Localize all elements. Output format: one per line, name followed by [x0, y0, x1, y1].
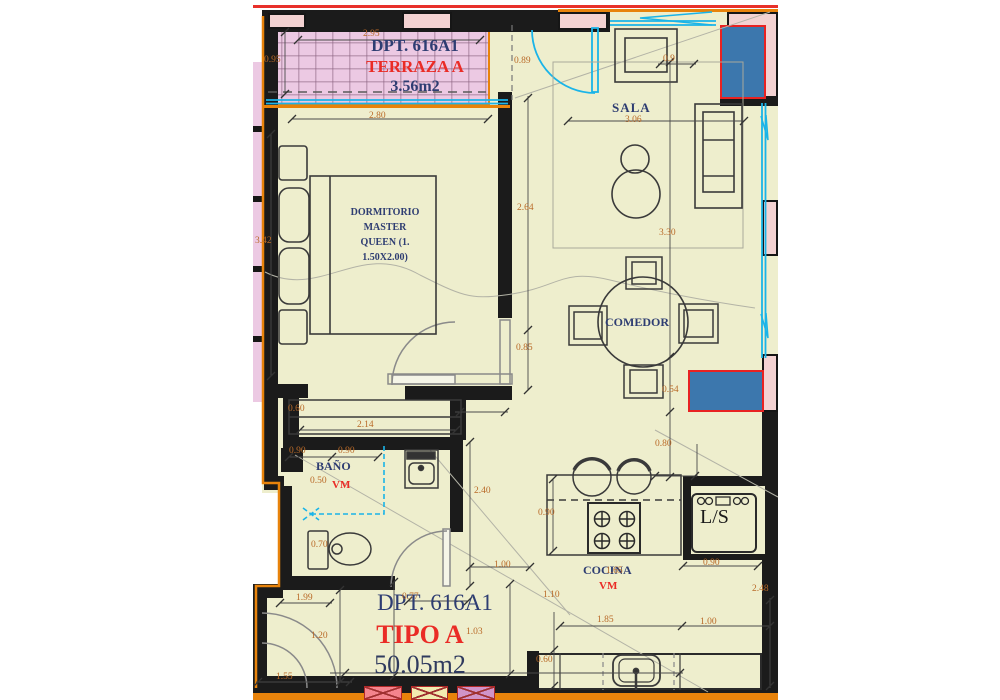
- terraza-door-arc: [532, 28, 598, 93]
- dim-bano-050: 0.50: [310, 476, 327, 486]
- dim-sala-sofa: 0.9: [663, 54, 675, 64]
- closet: [289, 400, 461, 434]
- shaft-box-purple: [457, 686, 495, 700]
- terraza-name-label: TERRAZA A: [340, 57, 490, 77]
- bathroom-sink: [405, 450, 438, 488]
- shaft-box-yellow: [411, 686, 448, 700]
- dim-dorm-width: 2.80: [369, 111, 386, 121]
- dim-dorm-length: 3.42: [255, 236, 272, 246]
- terraza-dpt-label: DPT. 616A1: [340, 36, 490, 56]
- dim-hall-door: 1.00: [494, 560, 511, 570]
- kitchen-counter-top: [547, 458, 681, 555]
- dim-bano-depth: 2.40: [474, 486, 491, 496]
- pillow: [279, 248, 309, 304]
- terraza-area-label: 3.56m2: [340, 78, 490, 96]
- armchair: [695, 104, 742, 208]
- side-table: [612, 145, 660, 218]
- dim-bano-w2: 0.90: [338, 446, 355, 456]
- boundary-line-orange-left: [256, 16, 279, 688]
- dim-entry-077: 0.77: [402, 592, 419, 602]
- cocina-vm-label: VM: [599, 580, 617, 592]
- dim-counter-right: 1.00: [700, 617, 717, 627]
- unit-dpt-label: DPT. 616A1: [340, 590, 530, 616]
- shaft-box-red: [364, 686, 402, 700]
- dim-entry-199: 1.99: [296, 593, 313, 603]
- dim-terraza-width: 2.95: [363, 29, 380, 39]
- sala-label: SALA: [612, 100, 651, 116]
- dim-column-offset: 0.54: [662, 385, 679, 395]
- dim-sala-depth: 3.30: [659, 228, 676, 238]
- stove: [588, 503, 640, 553]
- dim-counter-depth: 0.90: [538, 508, 555, 518]
- dim-toilet: 0.70: [311, 540, 328, 550]
- dim-entry-155: 1.55: [276, 672, 293, 682]
- floor-plan: DPT. 616A1 TERRAZA A 3.56m2 DORMITORIO M…: [0, 0, 1000, 700]
- bano-label: BAÑO: [316, 459, 351, 474]
- pillow: [279, 188, 309, 242]
- kitchen-sink: [560, 653, 680, 690]
- dormitorio-label: DORMITORIO MASTER QUEEN (1. 1.50X2.00): [325, 205, 445, 265]
- dim-terraza-door: 0.89: [514, 56, 531, 66]
- dim-sala-width: 3.06: [625, 115, 642, 125]
- dim-hall-103: 1.03: [466, 627, 483, 637]
- unit-area-label: 50.05m2: [345, 650, 495, 680]
- dim-cocina-len: 1.65: [606, 566, 623, 576]
- dim-counter-d: 0.60: [536, 655, 553, 665]
- dim-dorm-door: 0.85: [516, 343, 533, 353]
- comedor-label: COMEDOR: [605, 315, 669, 330]
- dim-terraza-depth: 0.95: [264, 55, 281, 65]
- dim-kitchen-height: 2.48: [752, 584, 769, 594]
- dim-cocina-gap: 0.80: [655, 439, 672, 449]
- toilet: [308, 531, 371, 569]
- dim-closet-width: 2.14: [357, 420, 374, 430]
- nightstand: [279, 310, 307, 344]
- bano-vm-label: VM: [332, 479, 350, 491]
- nightstand: [279, 146, 307, 180]
- dim-bano-w1: 0.90: [289, 446, 306, 456]
- dim-closet-offset: 0.60: [288, 404, 305, 414]
- dim-entry-120: 1.20: [311, 631, 328, 641]
- washer-dryer-label: L/S: [700, 506, 729, 529]
- dim-counter-len: 1.85: [597, 615, 614, 625]
- dim-ls-width: 0.90: [703, 558, 720, 568]
- dim-dorm-wall: 2.64: [517, 203, 534, 213]
- dim-cocina-110: 1.10: [543, 590, 560, 600]
